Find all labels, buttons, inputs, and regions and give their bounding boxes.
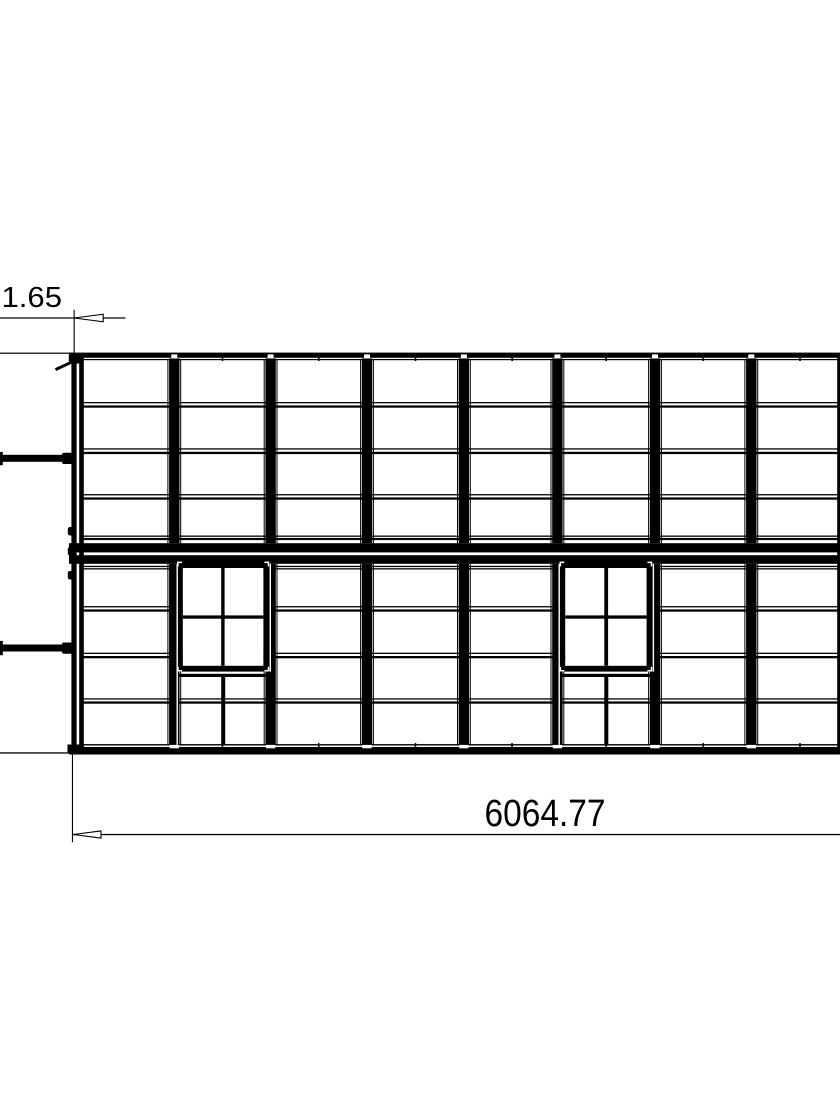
svg-text:6064.77: 6064.77 [485,793,606,835]
svg-text:1.65: 1.65 [2,282,63,314]
